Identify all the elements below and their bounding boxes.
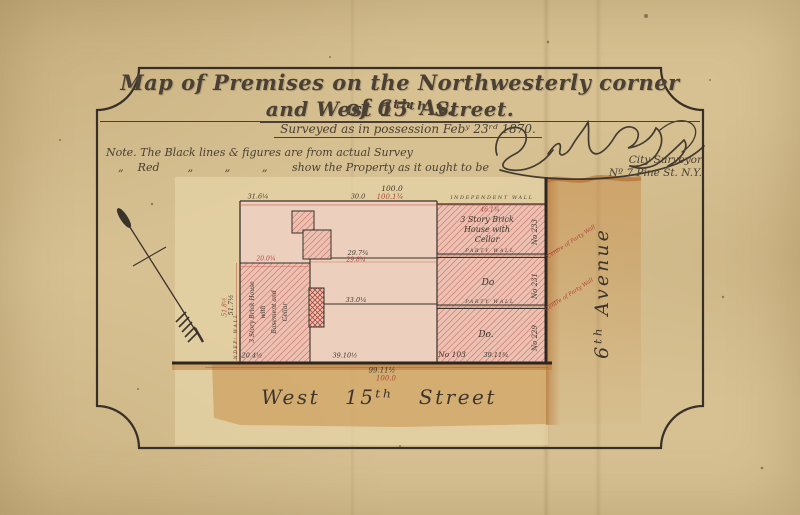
strip-house-line1: 3 Story Brick House — [249, 281, 256, 343]
dim-bottom-total-red: 100.0 — [376, 375, 397, 383]
party-wall-label-2: PARTY WALL — [464, 299, 515, 305]
dim-top-total-black: 100.0 — [381, 184, 403, 193]
street-name-6th-avenue: 6ᵗʰ Avenue — [591, 227, 613, 359]
independent-wall-left-label: INDEPᵗ WALL — [233, 313, 239, 363]
strip-house-line2: with — [260, 305, 267, 318]
dim-right-house-front: 46.1¾ — [479, 207, 499, 214]
surveyed-date-line: Surveyed as in possession Febʸ 23ʳᵈ 1870… — [208, 122, 608, 138]
house-229-number: No 229 — [531, 324, 539, 351]
strip-house-line4: Cellar — [282, 302, 289, 322]
dim-bottom-seg-mid: 39.10½ — [333, 352, 358, 360]
lot-middle — [310, 258, 437, 363]
house-231-ditto: Do — [481, 278, 495, 288]
independent-wall-label: INDEPENDENT WALL — [449, 195, 533, 201]
dim-top-seg-left: 31.6¼ — [248, 193, 269, 201]
house-233-line3: Cellar — [475, 235, 501, 244]
dim-left-side-red: 51.8½ — [222, 297, 229, 316]
strip-house-line3: Basement and — [271, 290, 278, 334]
party-wall-label-1: PARTY WALL — [464, 248, 515, 254]
lot-northwest — [240, 201, 437, 263]
house-233-line1: 3 Story Brick — [460, 215, 514, 224]
dim-strip-top: 20.0¾ — [255, 256, 275, 263]
house-103-number: No 103 — [437, 350, 466, 359]
dim-top-total-red: 100.1¾ — [377, 193, 404, 201]
survey-map-sheet: 100.0 100.1¾ 31.6¼ 30.0 INDEPENDENT WALL… — [0, 0, 800, 515]
dim-bottom-total-black: 99.11½ — [369, 367, 396, 375]
surveyor-address: Nº 7 Pine St. N.Y. — [609, 167, 702, 180]
legend-note-line1: Note. The Black lines & figures are from… — [106, 146, 413, 159]
dim-mid-lower: 33.0¼ — [346, 296, 367, 304]
dim-top-seg-mid: 30.0 — [351, 193, 365, 201]
house-231-number: No 231 — [531, 273, 539, 300]
street-name-west-15th: West 15ᵗʰ Street — [261, 385, 497, 409]
map-title-line2: and West 15ᵗʰ Street. — [100, 97, 680, 123]
house-233-line2: House with — [463, 225, 510, 234]
dim-strip-bottom: 20.4½ — [241, 352, 263, 360]
surveyor-title: City Surveyor — [609, 154, 702, 167]
house-233-number: No 233 — [531, 218, 539, 245]
legend-note-line2: „ Red „ „ „ show the Property as it ough… — [118, 161, 489, 174]
house-229-ditto: Do. — [477, 330, 493, 340]
dim-mid-red: 29.8¾ — [345, 257, 365, 264]
dim-bottom-seg-right: 39.11¾ — [484, 351, 509, 359]
surveyor-credit: City Surveyor Nº 7 Pine St. N.Y. — [609, 154, 702, 180]
